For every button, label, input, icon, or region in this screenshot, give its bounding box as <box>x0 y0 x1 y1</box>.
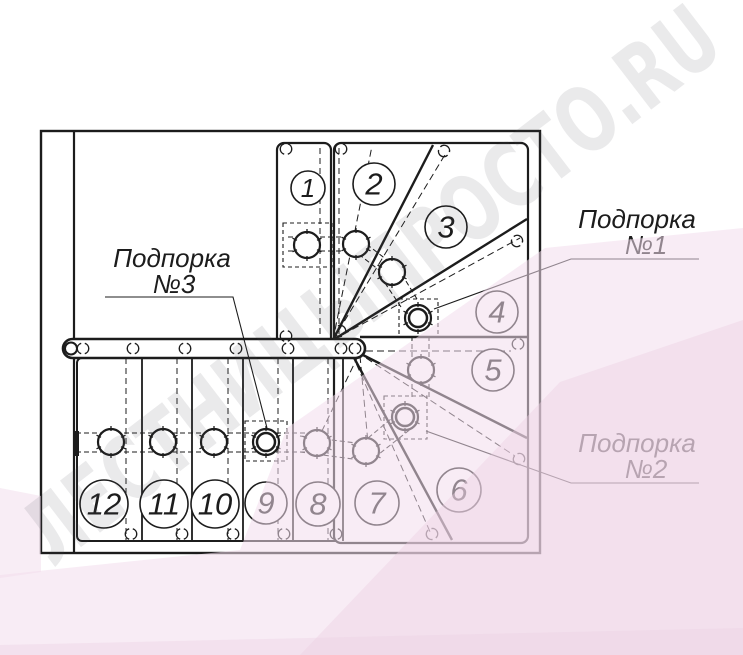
svg-text:4: 4 <box>488 295 505 330</box>
step-number-6: 6 <box>437 468 481 512</box>
step-number-1: 1 <box>291 171 325 205</box>
svg-text:9: 9 <box>257 486 274 521</box>
svg-text:6: 6 <box>450 473 468 508</box>
step-number-4: 4 <box>476 291 518 333</box>
svg-text:2: 2 <box>364 167 382 202</box>
support-3-label-line2: №3 <box>153 269 196 299</box>
watermark-pink-left-strip <box>0 488 41 578</box>
landing-beam <box>63 339 365 358</box>
svg-text:5: 5 <box>484 353 502 388</box>
svg-text:10: 10 <box>198 487 232 522</box>
step-number-7: 7 <box>355 481 399 525</box>
svg-text:12: 12 <box>87 487 121 522</box>
step-number-3: 3 <box>425 206 467 248</box>
step-number-8: 8 <box>296 482 340 526</box>
svg-text:7: 7 <box>368 486 387 521</box>
svg-text:8: 8 <box>309 487 327 522</box>
step-number-5: 5 <box>472 349 514 391</box>
beam-end-cap <box>65 343 77 355</box>
svg-text:3: 3 <box>437 210 454 245</box>
support-1-label-line2: №1 <box>625 230 668 260</box>
svg-text:1: 1 <box>301 173 315 203</box>
staircase-plan-drawing: 1 2 3 4 5 6 7 8 <box>0 0 743 655</box>
watermark-pink-bottom-band <box>0 628 743 655</box>
step-number-12: 12 <box>80 480 128 528</box>
step-number-2: 2 <box>353 163 395 205</box>
svg-text:11: 11 <box>148 487 180 522</box>
support-2-label-line2: №2 <box>625 454 668 484</box>
step-number-10: 10 <box>191 480 239 528</box>
staircase-plan-page: 1 2 3 4 5 6 7 8 <box>0 0 743 655</box>
step-number-9: 9 <box>245 482 287 524</box>
step-number-11: 11 <box>140 480 188 528</box>
